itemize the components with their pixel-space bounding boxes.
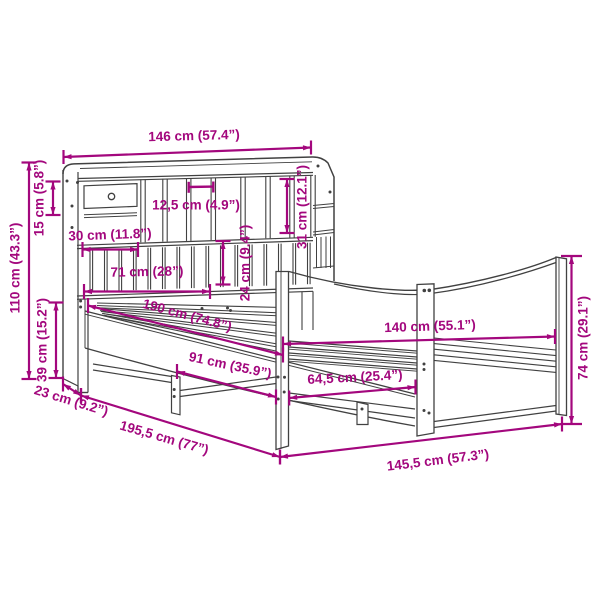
svg-text:145,5 cm (57.3”): 145,5 cm (57.3”) [386,446,490,473]
svg-text:24 cm (9.4”): 24 cm (9.4”) [238,225,253,302]
svg-text:71 cm (28”): 71 cm (28”) [110,263,183,279]
svg-text:30 cm (11.8”): 30 cm (11.8”) [68,226,152,244]
svg-text:195,5 cm (77”): 195,5 cm (77”) [118,418,210,458]
svg-text:91 cm (35.9”): 91 cm (35.9”) [188,349,273,381]
svg-text:146 cm (57.4”): 146 cm (57.4”) [148,127,240,144]
svg-text:15 cm (5.8”): 15 cm (5.8”) [32,160,47,237]
svg-text:12,5 cm (4.9”): 12,5 cm (4.9”) [152,198,240,213]
svg-text:140 cm (55.1”): 140 cm (55.1”) [384,317,476,335]
svg-text:39 cm (15.2”): 39 cm (15.2”) [35,298,50,382]
svg-text:31 cm (12.1”): 31 cm (12.1”) [295,165,310,249]
svg-text:74 cm (29.1”): 74 cm (29.1”) [576,296,591,380]
svg-text:110 cm (43.3”): 110 cm (43.3”) [8,223,23,314]
